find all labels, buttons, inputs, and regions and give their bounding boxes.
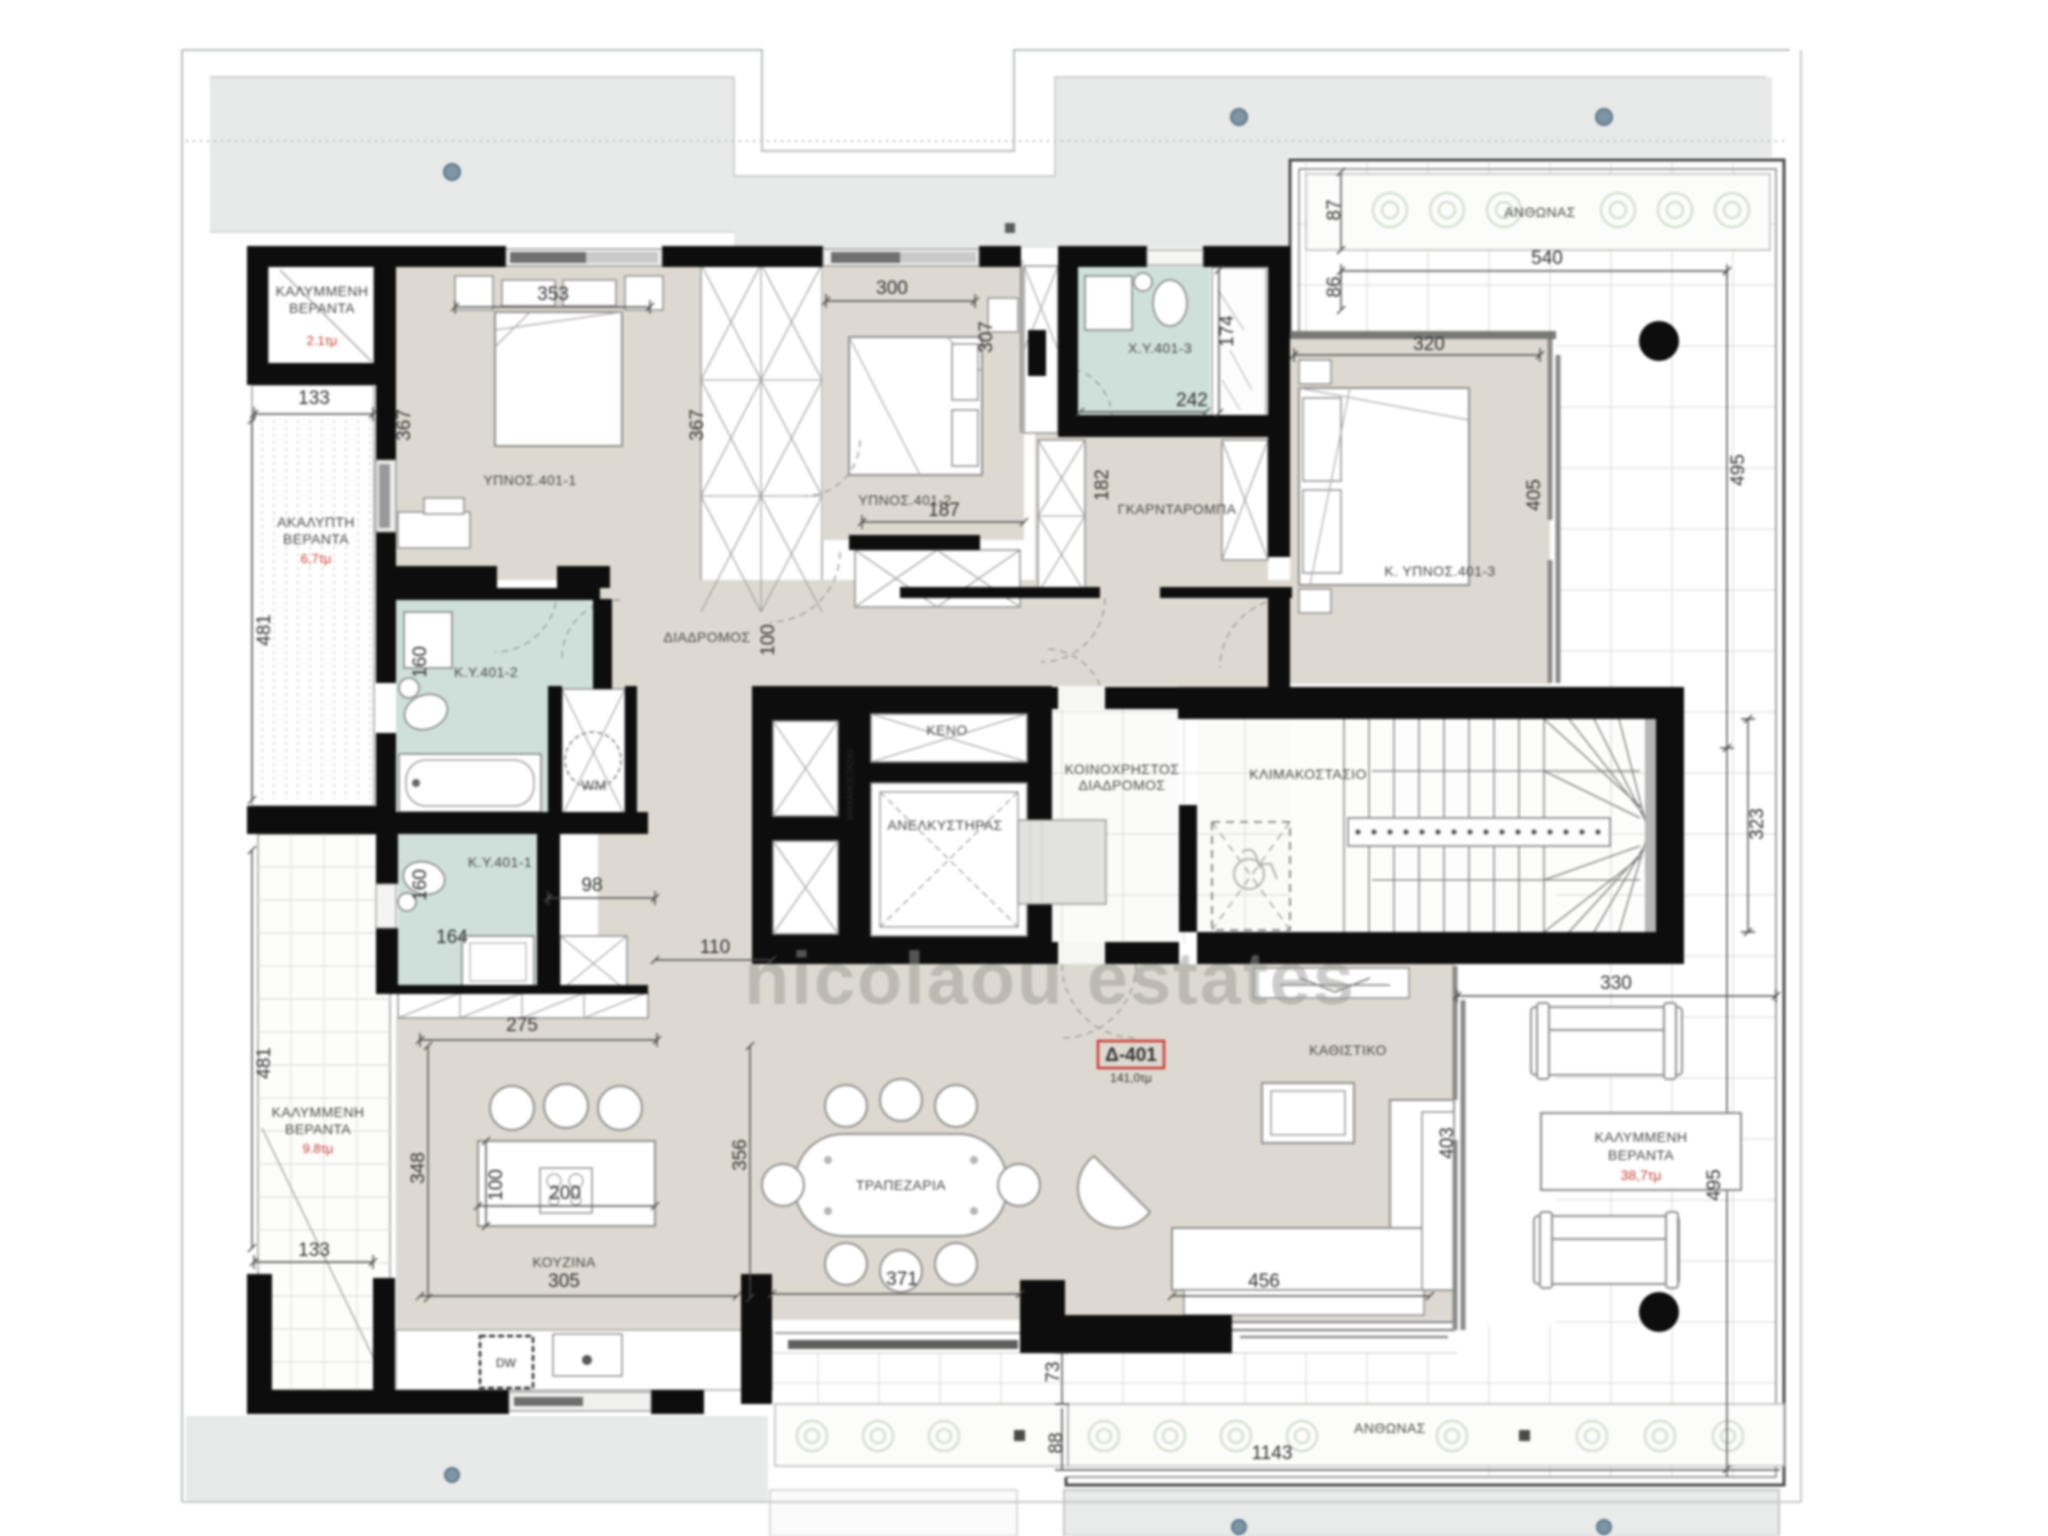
svg-text:Κ.Υ.401-2: Κ.Υ.401-2: [454, 664, 518, 680]
svg-text:353: 353: [537, 284, 569, 305]
svg-text:ΜΗΧΑΝΟΣΤΑΣΙΟ: ΜΗΧΑΝΟΣΤΑΣΙΟ: [845, 749, 855, 820]
svg-text:ΑΝΘΩΝΑΣ: ΑΝΘΩΝΑΣ: [1354, 1420, 1426, 1436]
svg-text:ΚΟΙΝΟΧΡΗΣΤΟΣ: ΚΟΙΝΟΧΡΗΣΤΟΣ: [1065, 761, 1180, 777]
svg-text:ΔΙΑΔΡΟΜΟΣ: ΔΙΑΔΡΟΜΟΣ: [664, 629, 751, 645]
svg-text:110: 110: [700, 937, 730, 958]
svg-text:330: 330: [1600, 973, 1632, 994]
svg-text:ΤΡΑΠΕΖΑΡΙΑ: ΤΡΑΠΕΖΑΡΙΑ: [856, 1177, 946, 1193]
svg-text:300: 300: [876, 278, 908, 299]
svg-text:ΔΙΑΔΡΟΜΟΣ: ΔΙΑΔΡΟΜΟΣ: [1079, 777, 1166, 793]
svg-text:305: 305: [548, 1271, 580, 1292]
svg-text:ΥΠΝΟΣ.401-1: ΥΠΝΟΣ.401-1: [483, 472, 576, 488]
svg-text:ΒΕΡΑΝΤΑ: ΒΕΡΑΝΤΑ: [285, 1121, 351, 1137]
svg-text:100: 100: [486, 1169, 507, 1201]
svg-text:174: 174: [1217, 315, 1238, 347]
svg-text:ΚΟΥΖΙΝΑ: ΚΟΥΖΙΝΑ: [532, 1254, 596, 1270]
svg-text:ΚΑΛΥΜΜΕΝΗ: ΚΑΛΥΜΜΕΝΗ: [272, 1104, 365, 1120]
svg-text:1143: 1143: [1252, 1443, 1293, 1464]
svg-text:481: 481: [254, 614, 275, 646]
svg-text:200: 200: [549, 1183, 581, 1204]
svg-text:242: 242: [1176, 390, 1208, 411]
svg-text:187: 187: [928, 500, 960, 521]
svg-text:ΒΕΡΑΝΤΑ: ΒΕΡΑΝΤΑ: [1608, 1147, 1674, 1163]
svg-text:98: 98: [581, 875, 602, 896]
svg-text:348: 348: [408, 1152, 429, 1184]
svg-text:88: 88: [1046, 1432, 1067, 1453]
svg-text:Κ. ΥΠΝΟΣ.401-3: Κ. ΥΠΝΟΣ.401-3: [1384, 563, 1495, 579]
svg-text:540: 540: [1531, 248, 1563, 269]
svg-text:371: 371: [886, 1269, 918, 1290]
svg-text:160: 160: [410, 869, 431, 901]
svg-text:307: 307: [976, 321, 997, 353]
svg-text:Δ-401: Δ-401: [1105, 1045, 1157, 1066]
svg-text:38,7τμ: 38,7τμ: [1621, 1167, 1662, 1183]
svg-text:2.1τμ: 2.1τμ: [307, 333, 338, 348]
svg-text:403: 403: [1437, 1127, 1458, 1159]
svg-text:ΑΝΕΛΚΥΣΤΗΡΑΣ: ΑΝΕΛΚΥΣΤΗΡΑΣ: [887, 817, 1002, 833]
svg-text:320: 320: [1413, 334, 1445, 355]
svg-text:323: 323: [1747, 808, 1768, 840]
svg-text:DW: DW: [496, 1356, 517, 1370]
svg-text:495: 495: [1728, 454, 1749, 486]
svg-text:ΚΑΛΥΜΜΕΝΗ: ΚΑΛΥΜΜΕΝΗ: [276, 283, 369, 299]
svg-text:87: 87: [1324, 199, 1345, 220]
svg-text:Χ.Υ.401-3: Χ.Υ.401-3: [1128, 340, 1192, 356]
svg-text:133: 133: [298, 1240, 330, 1261]
svg-text:164: 164: [436, 927, 468, 948]
svg-text:9.8τμ: 9.8τμ: [303, 1141, 334, 1156]
svg-text:100: 100: [758, 624, 779, 656]
svg-text:86: 86: [1324, 276, 1345, 297]
svg-text:6,7τμ: 6,7τμ: [301, 551, 332, 566]
svg-text:ΚΕΝΟ: ΚΕΝΟ: [926, 722, 967, 738]
svg-text:160: 160: [410, 646, 431, 678]
svg-text:ΑΚΑΛΥΠΤΗ: ΑΚΑΛΥΠΤΗ: [277, 514, 355, 530]
svg-text:456: 456: [1248, 1271, 1280, 1292]
svg-text:367: 367: [394, 409, 415, 441]
svg-text:141,0τμ: 141,0τμ: [1110, 1071, 1152, 1085]
svg-text:ΚΑΛΥΜΜΕΝΗ: ΚΑΛΥΜΜΕΝΗ: [1595, 1129, 1688, 1145]
svg-text:ΓΚΑΡΝΤΑΡΟΜΠΑ: ΓΚΑΡΝΤΑΡΟΜΠΑ: [1118, 501, 1237, 517]
svg-text:73: 73: [1043, 1361, 1064, 1382]
svg-text:ΑΝΘΩΝΑΣ: ΑΝΘΩΝΑΣ: [1504, 204, 1576, 220]
svg-text:367: 367: [687, 409, 708, 441]
svg-text:ΒΕΡΑΝΤΑ: ΒΕΡΑΝΤΑ: [283, 531, 349, 547]
svg-text:481: 481: [254, 1047, 275, 1079]
svg-text:182: 182: [1092, 469, 1113, 501]
svg-text:nicolaou estates: nicolaou estates: [744, 937, 1356, 1020]
svg-text:356: 356: [730, 1139, 751, 1171]
svg-text:405: 405: [1524, 479, 1545, 511]
svg-text:ΚΛΙΜΑΚΟΣΤΑΣΙΟ: ΚΛΙΜΑΚΟΣΤΑΣΙΟ: [1249, 766, 1367, 782]
svg-text:ΒΕΡΑΝΤΑ: ΒΕΡΑΝΤΑ: [289, 300, 355, 316]
svg-text:495: 495: [1704, 1169, 1725, 1201]
svg-text:ΚΑΘΙΣΤΙΚΟ: ΚΑΘΙΣΤΙΚΟ: [1309, 1042, 1387, 1058]
svg-text:133: 133: [298, 388, 330, 409]
svg-text:275: 275: [506, 1015, 538, 1036]
svg-text:WM: WM: [581, 777, 607, 793]
svg-text:Κ.Υ.401-1: Κ.Υ.401-1: [468, 854, 532, 870]
